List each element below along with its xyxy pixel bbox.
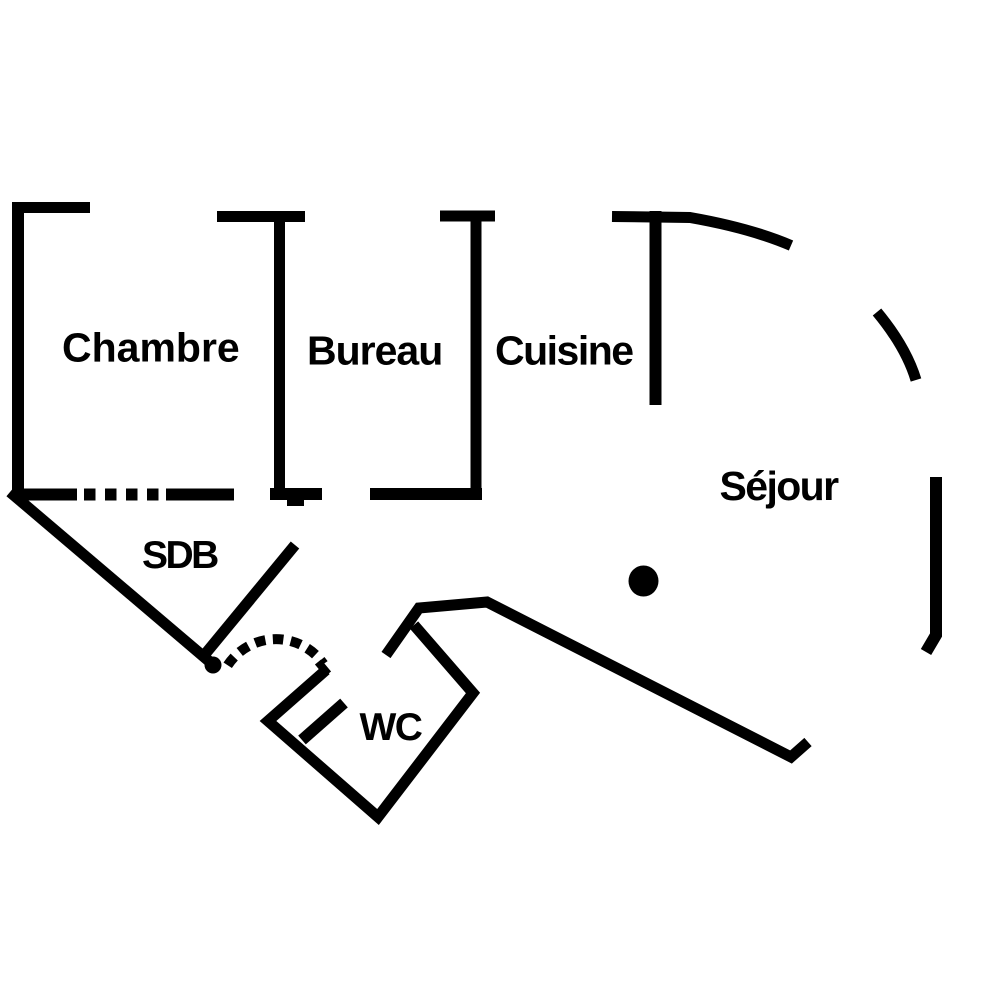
- svg-text:Séjour: Séjour: [720, 463, 840, 509]
- svg-text:WC: WC: [360, 706, 423, 749]
- svg-text:Chambre: Chambre: [62, 325, 240, 371]
- svg-text:SDB: SDB: [142, 534, 218, 577]
- svg-text:Cuisine: Cuisine: [495, 328, 633, 374]
- svg-text:Bureau: Bureau: [307, 328, 442, 374]
